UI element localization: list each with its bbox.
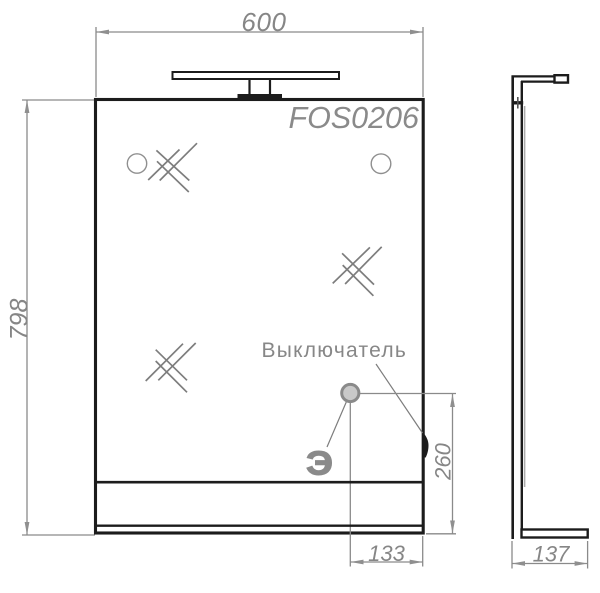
svg-text:798: 798	[6, 299, 34, 341]
svg-text:Э: Э	[306, 445, 333, 482]
svg-text:Выключатель: Выключатель	[262, 339, 408, 362]
svg-text:133: 133	[368, 541, 405, 566]
svg-text:600: 600	[241, 7, 286, 37]
svg-text:FOS0206: FOS0206	[288, 101, 419, 135]
svg-text:260: 260	[431, 442, 456, 480]
svg-text:137: 137	[533, 542, 570, 567]
